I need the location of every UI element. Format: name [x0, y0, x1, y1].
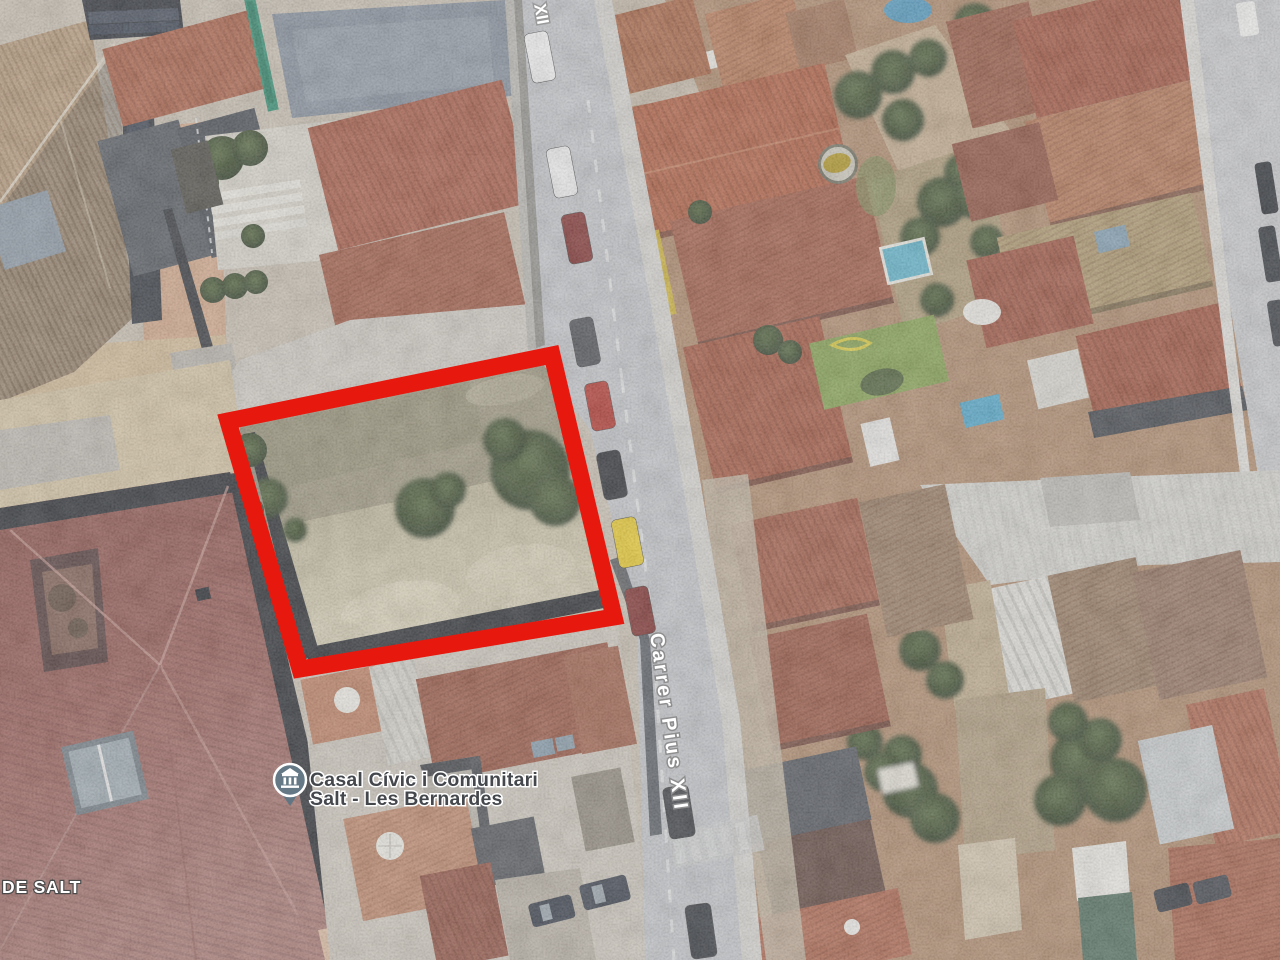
- svg-text:XII: XII: [530, 2, 552, 26]
- svg-text:DE SALT: DE SALT: [2, 877, 81, 897]
- svg-text:Salt - Les Bernardes: Salt - Les Bernardes: [310, 788, 503, 810]
